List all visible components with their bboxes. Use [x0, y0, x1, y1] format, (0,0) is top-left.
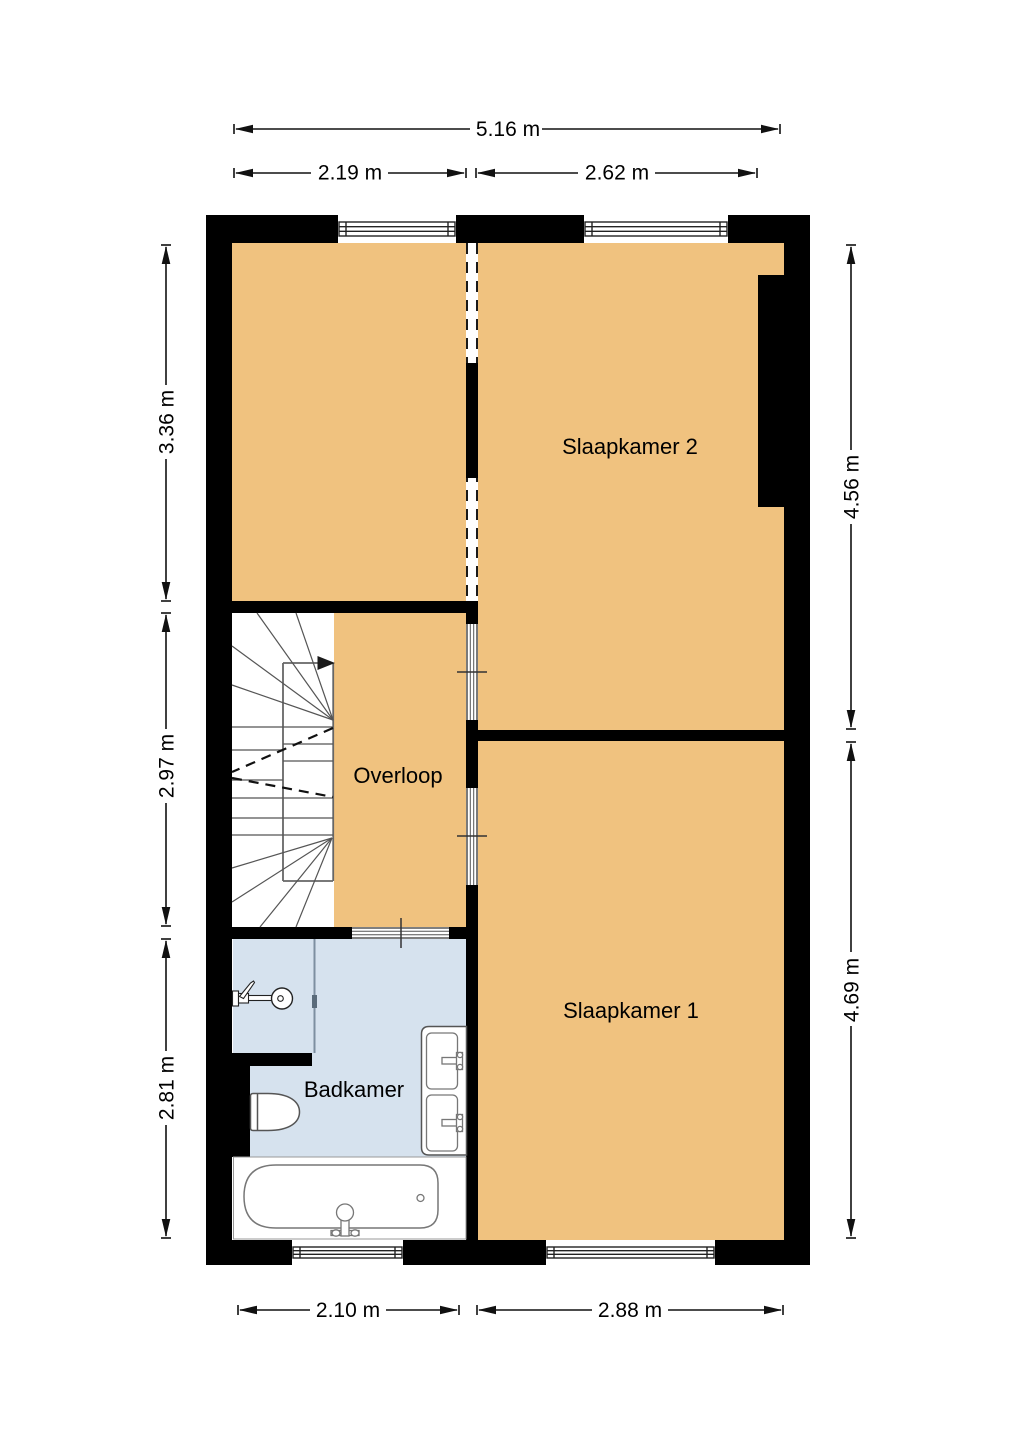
svg-text:Slaapkamer 1: Slaapkamer 1 [563, 998, 699, 1023]
svg-text:2.19 m: 2.19 m [318, 162, 382, 185]
svg-text:5.16 m: 5.16 m [476, 118, 540, 141]
svg-text:4.69 m: 4.69 m [841, 958, 864, 1022]
svg-text:2.62 m: 2.62 m [585, 162, 649, 185]
svg-text:3.36 m: 3.36 m [156, 390, 179, 454]
svg-text:Slaapkamer 2: Slaapkamer 2 [562, 434, 698, 459]
svg-text:2.81 m: 2.81 m [156, 1056, 179, 1120]
svg-text:Overloop: Overloop [353, 763, 442, 788]
svg-text:2.97 m: 2.97 m [156, 734, 179, 798]
svg-text:2.88 m: 2.88 m [598, 1299, 662, 1322]
svg-text:Badkamer: Badkamer [304, 1077, 404, 1102]
svg-text:2.10 m: 2.10 m [316, 1299, 380, 1322]
svg-text:4.56 m: 4.56 m [841, 455, 864, 519]
